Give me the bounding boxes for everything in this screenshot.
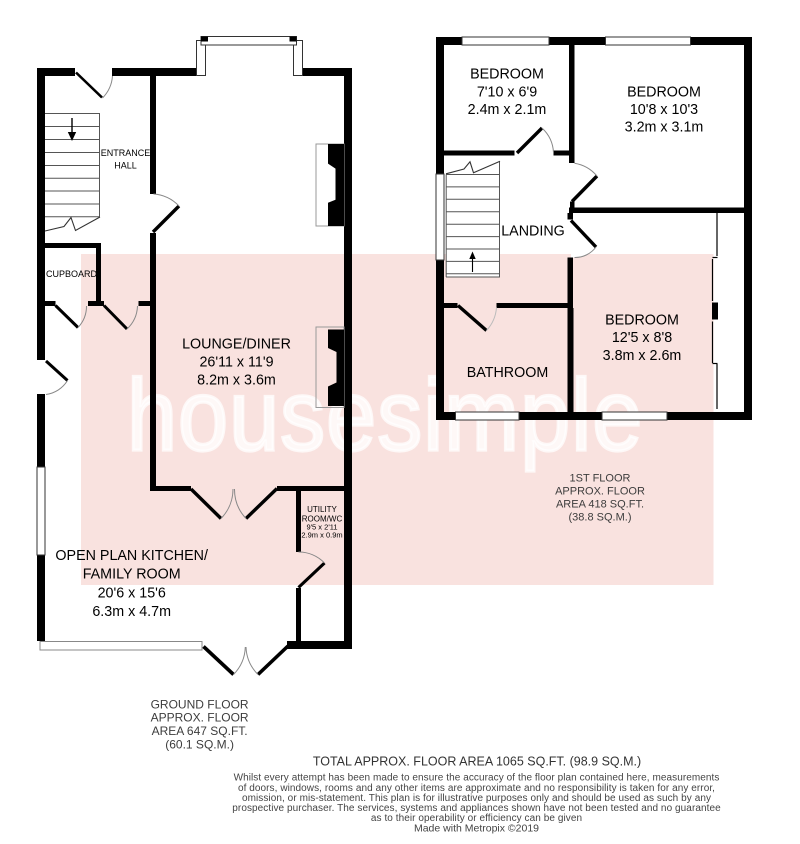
svg-text:BEDROOM: BEDROOM — [605, 312, 679, 328]
svg-text:HALL: HALL — [114, 161, 137, 171]
svg-text:8.2m x 3.6m: 8.2m x 3.6m — [197, 373, 276, 389]
svg-text:6.3m x 4.7m: 6.3m x 4.7m — [92, 604, 171, 620]
svg-text:(38.8 SQ.M.): (38.8 SQ.M.) — [569, 512, 632, 524]
svg-text:BEDROOM: BEDROOM — [470, 67, 544, 83]
svg-text:AREA 647 SQ.FT.: AREA 647 SQ.FT. — [152, 724, 248, 738]
svg-text:3.8m x 2.6m: 3.8m x 2.6m — [603, 348, 682, 364]
svg-text:ENTRANCE: ENTRANCE — [101, 148, 151, 158]
svg-text:AREA 418 SQ.FT.: AREA 418 SQ.FT. — [556, 498, 644, 510]
svg-text:7'10 x 6'9: 7'10 x 6'9 — [477, 84, 537, 100]
svg-text:BATHROOM: BATHROOM — [467, 365, 549, 381]
svg-text:10'8 x 10'3: 10'8 x 10'3 — [630, 102, 698, 118]
svg-text:BEDROOM: BEDROOM — [627, 84, 701, 100]
svg-text:APPROX. FLOOR: APPROX. FLOOR — [555, 485, 645, 497]
svg-text:Made with Metropix ©2019: Made with Metropix ©2019 — [414, 822, 539, 834]
svg-text:12'5 x 8'8: 12'5 x 8'8 — [612, 330, 672, 346]
svg-text:3.2m x 3.1m: 3.2m x 3.1m — [625, 120, 704, 136]
svg-text:APPROX. FLOOR: APPROX. FLOOR — [151, 710, 249, 724]
svg-text:1ST FLOOR: 1ST FLOOR — [570, 472, 631, 484]
svg-text:2.4m x 2.1m: 2.4m x 2.1m — [468, 102, 547, 118]
svg-text:20'6 x 15'6: 20'6 x 15'6 — [98, 585, 166, 601]
svg-text:CUPBOARD: CUPBOARD — [46, 269, 98, 279]
svg-text:FAMILY ROOM: FAMILY ROOM — [83, 567, 181, 583]
svg-text:LOUNGE/DINER: LOUNGE/DINER — [182, 337, 291, 353]
svg-text:LANDING: LANDING — [501, 224, 565, 240]
svg-text:(60.1 SQ.M.): (60.1 SQ.M.) — [165, 738, 234, 752]
svg-text:TOTAL APPROX. FLOOR AREA 1065: TOTAL APPROX. FLOOR AREA 1065 SQ.FT. (98… — [313, 755, 641, 769]
svg-text:OPEN PLAN KITCHEN/: OPEN PLAN KITCHEN/ — [55, 548, 208, 564]
svg-text:26'11 x 11'9: 26'11 x 11'9 — [199, 355, 273, 371]
svg-text:2.9m x 0.9m: 2.9m x 0.9m — [301, 531, 342, 540]
svg-text:UTILITY: UTILITY — [307, 505, 337, 514]
